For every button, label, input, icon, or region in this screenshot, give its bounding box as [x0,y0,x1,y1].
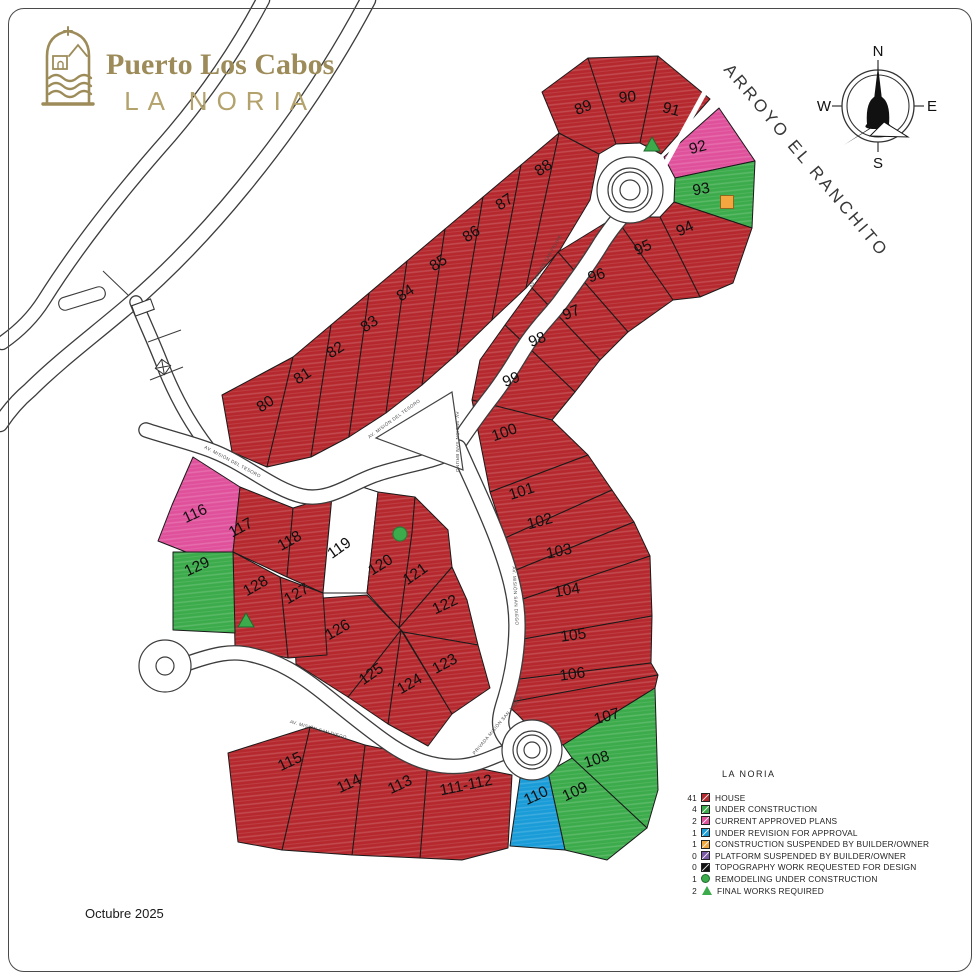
compass-n: N [873,43,884,60]
lot-number-105: 105 [559,625,587,645]
mission-bell-icon [40,26,96,108]
legend-label: TOPOGRAPHY WORK REQUESTED FOR DESIGN [715,862,916,872]
legend-label: HOUSE [715,793,746,803]
legend-square-swatch [701,793,710,802]
legend-count: 1 [684,828,697,838]
legend-row-5: 0PLATFORM SUSPENDED BY BUILDER/OWNER [684,850,929,862]
legend: LA NORIA 41HOUSE4UNDER CONSTRUCTION2CURR… [684,769,929,896]
legend-row-1: 4UNDER CONSTRUCTION [684,804,929,816]
legend-count: 4 [684,804,697,814]
legend-square-swatch [701,816,710,825]
legend-count: 0 [684,862,697,872]
legend-square-swatch [701,851,710,860]
compass-w: W [817,98,832,115]
street-label: AV. MISIÓN SAN BRUNO [455,412,461,473]
legend-title: LA NORIA [722,769,929,779]
legend-count: 1 [684,839,697,849]
legend-circle-swatch [701,874,710,883]
roundabout-ring [620,180,640,200]
road-tick [103,271,128,295]
logo-subtitle: LA NORIA [106,86,334,117]
legend-row-7: 1REMODELING UNDER CONSTRUCTION [684,873,929,885]
legend-label: CURRENT APPROVED PLANS [715,816,837,826]
legend-triangle-swatch [702,886,712,895]
legend-label: UNDER CONSTRUCTION [715,804,817,814]
compass-s: S [873,155,883,172]
legend-count: 1 [684,874,697,884]
legend-row-3: 1UNDER REVISION FOR APPROVAL [684,827,929,839]
legend-label: UNDER REVISION FOR APPROVAL [715,828,858,838]
legend-row-0: 41HOUSE [684,792,929,804]
legend-row-6: 0TOPOGRAPHY WORK REQUESTED FOR DESIGN [684,862,929,874]
legend-label: PLATFORM SUSPENDED BY BUILDER/OWNER [715,851,906,861]
compass-rose: N S W E [814,30,942,182]
remodeling-circle-icon [393,527,407,541]
entrance-details [57,271,183,380]
legend-square-swatch [701,805,710,814]
legend-square-swatch [701,840,710,849]
legend-label: REMODELING UNDER CONSTRUCTION [715,874,878,884]
logo: Puerto Los Cabos LA NORIA [40,26,334,117]
legend-label: FINAL WORKS REQUIRED [717,886,824,896]
roundabout-ring [156,657,174,675]
date-label: Octubre 2025 [85,906,164,921]
roundabout-ring [524,742,540,758]
legend-label: CONSTRUCTION SUSPENDED BY BUILDER/OWNER [715,839,929,849]
legend-square-swatch [701,828,710,837]
legend-count: 41 [684,793,697,803]
legend-row-4: 1CONSTRUCTION SUSPENDED BY BUILDER/OWNER [684,838,929,850]
lot-number-90: 90 [618,88,637,107]
legend-count: 2 [684,816,697,826]
lot-number-93: 93 [691,180,711,200]
legend-square-swatch [701,863,710,872]
compass-e: E [927,98,937,115]
legend-row-8: 2FINAL WORKS REQUIRED [684,885,929,897]
legend-row-2: 2CURRENT APPROVED PLANS [684,815,929,827]
suspended-square-icon [721,196,734,209]
logo-title: Puerto Los Cabos [106,50,334,80]
legend-count: 2 [684,886,697,896]
legend-count: 0 [684,851,697,861]
lot-number-106: 106 [558,664,586,684]
ramp-stub [57,285,107,311]
